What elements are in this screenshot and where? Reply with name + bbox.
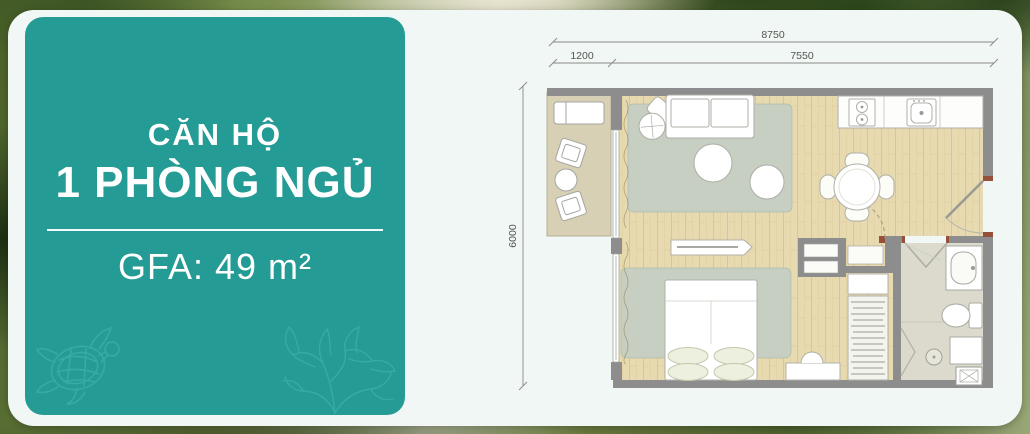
info-panel: CĂN HỘ 1 PHÒNG NGỦ GFA: 49 m²	[25, 17, 405, 415]
coral-icon	[273, 319, 401, 415]
apartment-type-label: CĂN HỘ	[25, 117, 405, 153]
bedroom-count-title: 1 PHÒNG NGỦ	[25, 158, 405, 208]
turtle-icon	[33, 322, 133, 407]
panel-divider	[47, 229, 383, 231]
content-card: CĂN HỘ 1 PHÒNG NGỦ GFA: 49 m²	[8, 10, 1022, 426]
gfa-value: GFA: 49 m²	[25, 246, 405, 288]
